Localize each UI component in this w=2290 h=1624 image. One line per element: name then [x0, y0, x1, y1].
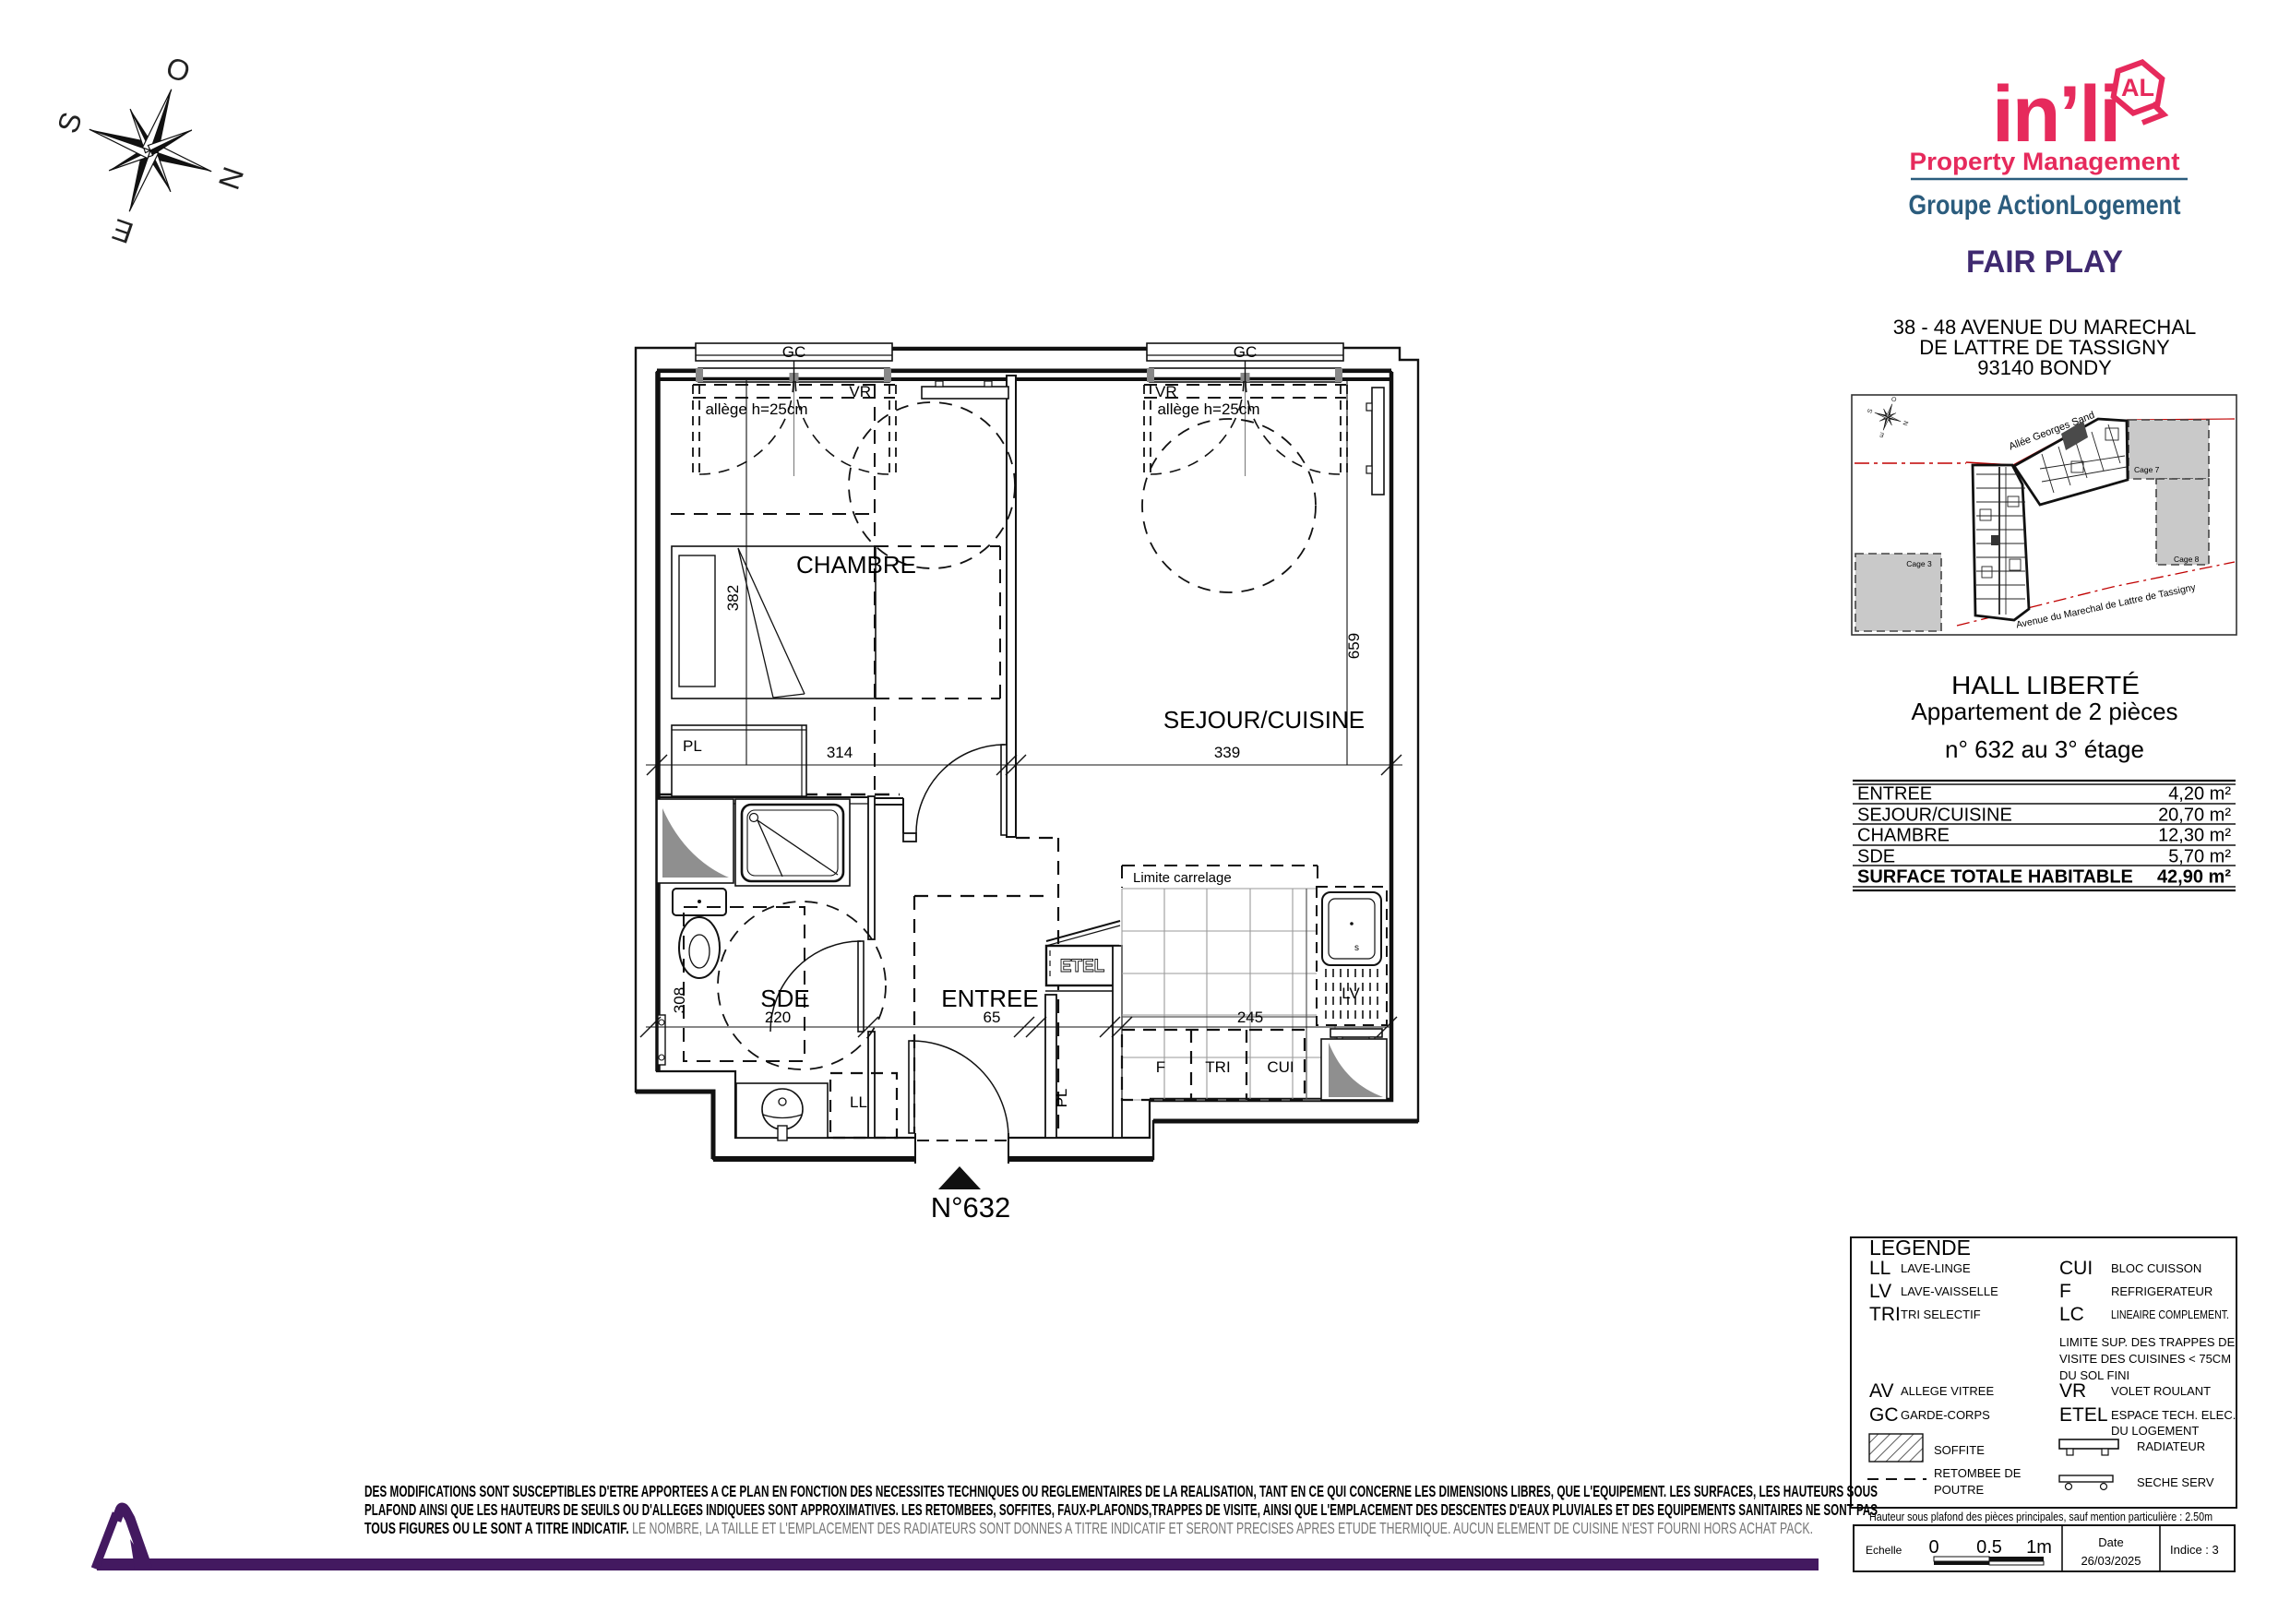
svg-text:LAVE-LINGE: LAVE-LINGE: [1901, 1261, 1971, 1275]
svg-text:245: 245: [1237, 1009, 1263, 1026]
svg-text:0.5: 0.5: [1976, 1537, 2002, 1558]
svg-text:382: 382: [724, 585, 742, 611]
svg-text:5,70 m²: 5,70 m²: [2168, 847, 2231, 867]
svg-text:659: 659: [1345, 633, 1363, 659]
svg-text:LV: LV: [1869, 1281, 1891, 1302]
svg-text:ALLEGE VITREE: ALLEGE VITREE: [1901, 1384, 1994, 1398]
svg-text:PL: PL: [1053, 1089, 1070, 1108]
svg-text:RETOMBEE DE: RETOMBEE DE: [1934, 1466, 2022, 1480]
svg-text:CUI: CUI: [1267, 1058, 1294, 1076]
svg-text:1m: 1m: [2026, 1537, 2052, 1558]
svg-text:Limite carrelage: Limite carrelage: [1133, 870, 1232, 886]
svg-text:VOLET ROULANT: VOLET ROULANT: [2111, 1384, 2211, 1398]
svg-text:F: F: [1156, 1058, 1165, 1076]
svg-text:Cage 7: Cage 7: [2134, 465, 2160, 474]
svg-text:SOFFITE: SOFFITE: [1934, 1443, 1985, 1457]
svg-text:ETEL: ETEL: [2059, 1404, 2108, 1426]
svg-text:s: s: [1354, 943, 1359, 953]
svg-text:CUI: CUI: [2059, 1258, 2093, 1279]
svg-text:DES MODIFICATIONS SONT SUSCEPT: DES MODIFICATIONS SONT SUSCEPTIBLES D'ET…: [364, 1482, 1878, 1500]
svg-text:Date: Date: [2098, 1535, 2123, 1549]
svg-text:LIMITE SUP. DES TRAPPES DE: LIMITE SUP. DES TRAPPES DE: [2059, 1335, 2236, 1349]
svg-text:AL: AL: [2121, 74, 2154, 101]
svg-text:RADIATEUR: RADIATEUR: [2137, 1439, 2205, 1453]
svg-text:LC: LC: [2059, 1304, 2084, 1325]
svg-text:CHAMBRE: CHAMBRE: [1857, 826, 1950, 846]
svg-text:Property Management: Property Management: [1910, 148, 2180, 175]
svg-text:ESPACE TECH. ELEC.: ESPACE TECH. ELEC.: [2111, 1408, 2236, 1422]
svg-text:allège h=25cm: allège h=25cm: [1157, 400, 1259, 418]
svg-text:GARDE-CORPS: GARDE-CORPS: [1901, 1408, 1990, 1422]
svg-text:HALL LIBERTÉ: HALL LIBERTÉ: [1951, 671, 2140, 699]
svg-text:TRI SELECTIF: TRI SELECTIF: [1901, 1308, 1981, 1321]
svg-text:26/03/2025: 26/03/2025: [2081, 1554, 2141, 1568]
svg-text:GC: GC: [1869, 1404, 1899, 1426]
svg-text:PLAFOND AINSI QUE LES HAUTEURS: PLAFOND AINSI QUE LES HAUTEURS DE SEUILS…: [364, 1500, 1878, 1519]
svg-text:in’li: in’li: [1992, 70, 2119, 159]
svg-text:TRI: TRI: [1205, 1058, 1230, 1076]
svg-text:LL: LL: [1869, 1258, 1890, 1279]
svg-text:93140 BONDY: 93140 BONDY: [1977, 356, 2112, 379]
svg-text:308: 308: [671, 987, 688, 1013]
svg-text:BLOC CUISSON: BLOC CUISSON: [2111, 1261, 2201, 1275]
svg-text:SEJOUR/CUISINE: SEJOUR/CUISINE: [1163, 706, 1365, 734]
svg-text:GC: GC: [1234, 343, 1258, 361]
svg-text:PL: PL: [683, 737, 702, 755]
svg-text:Hauteur sous plafond des pièce: Hauteur sous plafond des pièces principa…: [1869, 1511, 2212, 1523]
svg-text:DU LOGEMENT: DU LOGEMENT: [2111, 1424, 2199, 1438]
svg-text:SDE: SDE: [760, 985, 809, 1012]
svg-text:LINEAIRE COMPLEMENT.: LINEAIRE COMPLEMENT.: [2111, 1308, 2229, 1321]
svg-text:ENTREE: ENTREE: [941, 985, 1038, 1012]
svg-text:SEJOUR/CUISINE: SEJOUR/CUISINE: [1857, 806, 2012, 826]
svg-text:LL: LL: [850, 1093, 867, 1111]
svg-text:ETEL: ETEL: [1060, 957, 1105, 976]
svg-text:Cage 3: Cage 3: [1906, 559, 1932, 568]
svg-text:SDE: SDE: [1857, 847, 1895, 867]
svg-text:SECHE SERV: SECHE SERV: [2137, 1475, 2214, 1489]
svg-text:Appartement de 2 pièces: Appartement de 2 pièces: [1911, 698, 2177, 725]
svg-text:REFRIGERATEUR: REFRIGERATEUR: [2111, 1284, 2212, 1298]
svg-text:GC: GC: [782, 343, 806, 361]
svg-text:Groupe ActionLogement: Groupe ActionLogement: [1909, 190, 2181, 221]
svg-text:TRI: TRI: [1869, 1304, 1901, 1325]
svg-text:Echelle: Echelle: [1866, 1544, 1902, 1557]
svg-text:AV: AV: [1869, 1380, 1893, 1402]
svg-text:VR: VR: [2059, 1380, 2086, 1402]
svg-text:Indice : 3: Indice : 3: [2170, 1543, 2219, 1557]
svg-text:LAVE-VAISSELLE: LAVE-VAISSELLE: [1901, 1284, 1998, 1298]
svg-text:4,20 m²: 4,20 m²: [2168, 784, 2231, 805]
svg-text:F: F: [2059, 1281, 2071, 1302]
svg-text:POUTRE: POUTRE: [1934, 1483, 1985, 1497]
svg-text:SURFACE TOTALE HABITABLE: SURFACE TOTALE HABITABLE: [1857, 867, 2133, 888]
svg-text:n° 632 au 3° étage: n° 632 au 3° étage: [1945, 735, 2144, 763]
svg-text:ENTREE: ENTREE: [1857, 784, 1932, 805]
svg-text:339: 339: [1214, 744, 1240, 761]
svg-text:TOUS FIGURES OU LE SONT A TITR: TOUS FIGURES OU LE SONT A TITRE INDICATI…: [364, 1519, 1813, 1537]
svg-text:FAIR PLAY: FAIR PLAY: [1966, 245, 2123, 280]
svg-text:12,30 m²: 12,30 m²: [2158, 826, 2231, 846]
svg-text:VISITE DES CUISINES < 75CM: VISITE DES CUISINES < 75CM: [2059, 1352, 2231, 1366]
svg-text:Cage 8: Cage 8: [2174, 555, 2200, 564]
svg-text:N°632: N°632: [931, 1191, 1011, 1224]
svg-text:314: 314: [827, 744, 853, 761]
svg-text:CHAMBRE: CHAMBRE: [796, 551, 916, 579]
svg-text:42,90 m²: 42,90 m²: [2157, 867, 2231, 888]
svg-text:allège h=25cm: allège h=25cm: [705, 400, 807, 418]
svg-text:LV: LV: [1342, 985, 1360, 1002]
svg-text:0: 0: [1928, 1537, 1938, 1558]
svg-text:20,70 m²: 20,70 m²: [2158, 806, 2231, 826]
svg-text:LEGENDE: LEGENDE: [1869, 1236, 1971, 1260]
